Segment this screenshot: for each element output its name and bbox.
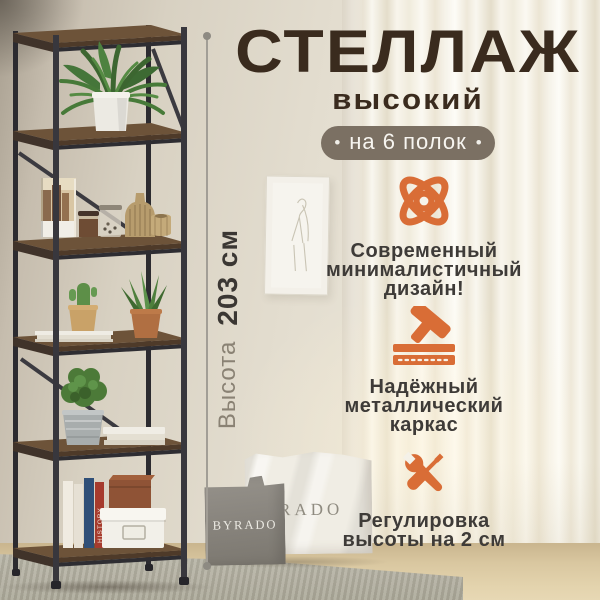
- glass-jar: [99, 205, 122, 237]
- feature-design: Современный минималистичный дизайн!: [305, 172, 543, 299]
- wrench-screwdriver-icon: [305, 446, 543, 505]
- bucket-plant: [61, 368, 107, 445]
- title-block: СТЕЛЛАЖ высокий • на 6 полок •: [218, 22, 598, 160]
- height-word: Высота: [214, 341, 242, 429]
- magazine-stack: [35, 331, 113, 342]
- product-title: СТЕЛЛАЖ: [199, 22, 600, 82]
- feature-design-text: Современный минималистичный дизайн!: [305, 242, 543, 299]
- white-plant-pot: [92, 92, 130, 131]
- gray-bag-label: BYRADO: [205, 517, 285, 533]
- cactus-plant: [68, 283, 98, 331]
- storage-box: [100, 508, 166, 548]
- wooden-box: [109, 475, 155, 510]
- yucca-plant: [121, 271, 167, 338]
- shelf-board-3: [13, 233, 187, 260]
- shelf-count-badge: • на 6 полок •: [321, 126, 494, 160]
- shelving-unit: HISTORY: [5, 25, 205, 595]
- product-subtitle: высокий: [203, 84, 600, 117]
- lying-books: [103, 427, 165, 445]
- feature-frame-text: Надёжный металлический каркас: [305, 378, 543, 435]
- badge-dot-left: •: [334, 134, 340, 151]
- gray-paper-bag: BYRADO: [204, 475, 286, 565]
- height-value: 203 см: [212, 229, 244, 326]
- product-card: HISTORY RADO BYRADO: [0, 0, 600, 600]
- feature-adjust: Регулировка высоты на 2 см: [305, 446, 543, 550]
- dimension-dot-bottom: [203, 562, 211, 570]
- feature-frame: Надёжный металлический каркас: [305, 306, 543, 435]
- atom-icon: [305, 172, 543, 235]
- small-ribbed-vase: [151, 214, 171, 237]
- badge-label: на 6 полок: [349, 129, 466, 155]
- badge-dot-right: •: [476, 134, 482, 151]
- hammer-icon: [305, 306, 543, 371]
- height-dimension-label: Высота 203 см: [209, 179, 247, 479]
- candle-jar: [78, 211, 99, 237]
- galvanized-bucket: [62, 410, 104, 445]
- feature-adjust-text: Регулировка высоты на 2 см: [305, 512, 543, 550]
